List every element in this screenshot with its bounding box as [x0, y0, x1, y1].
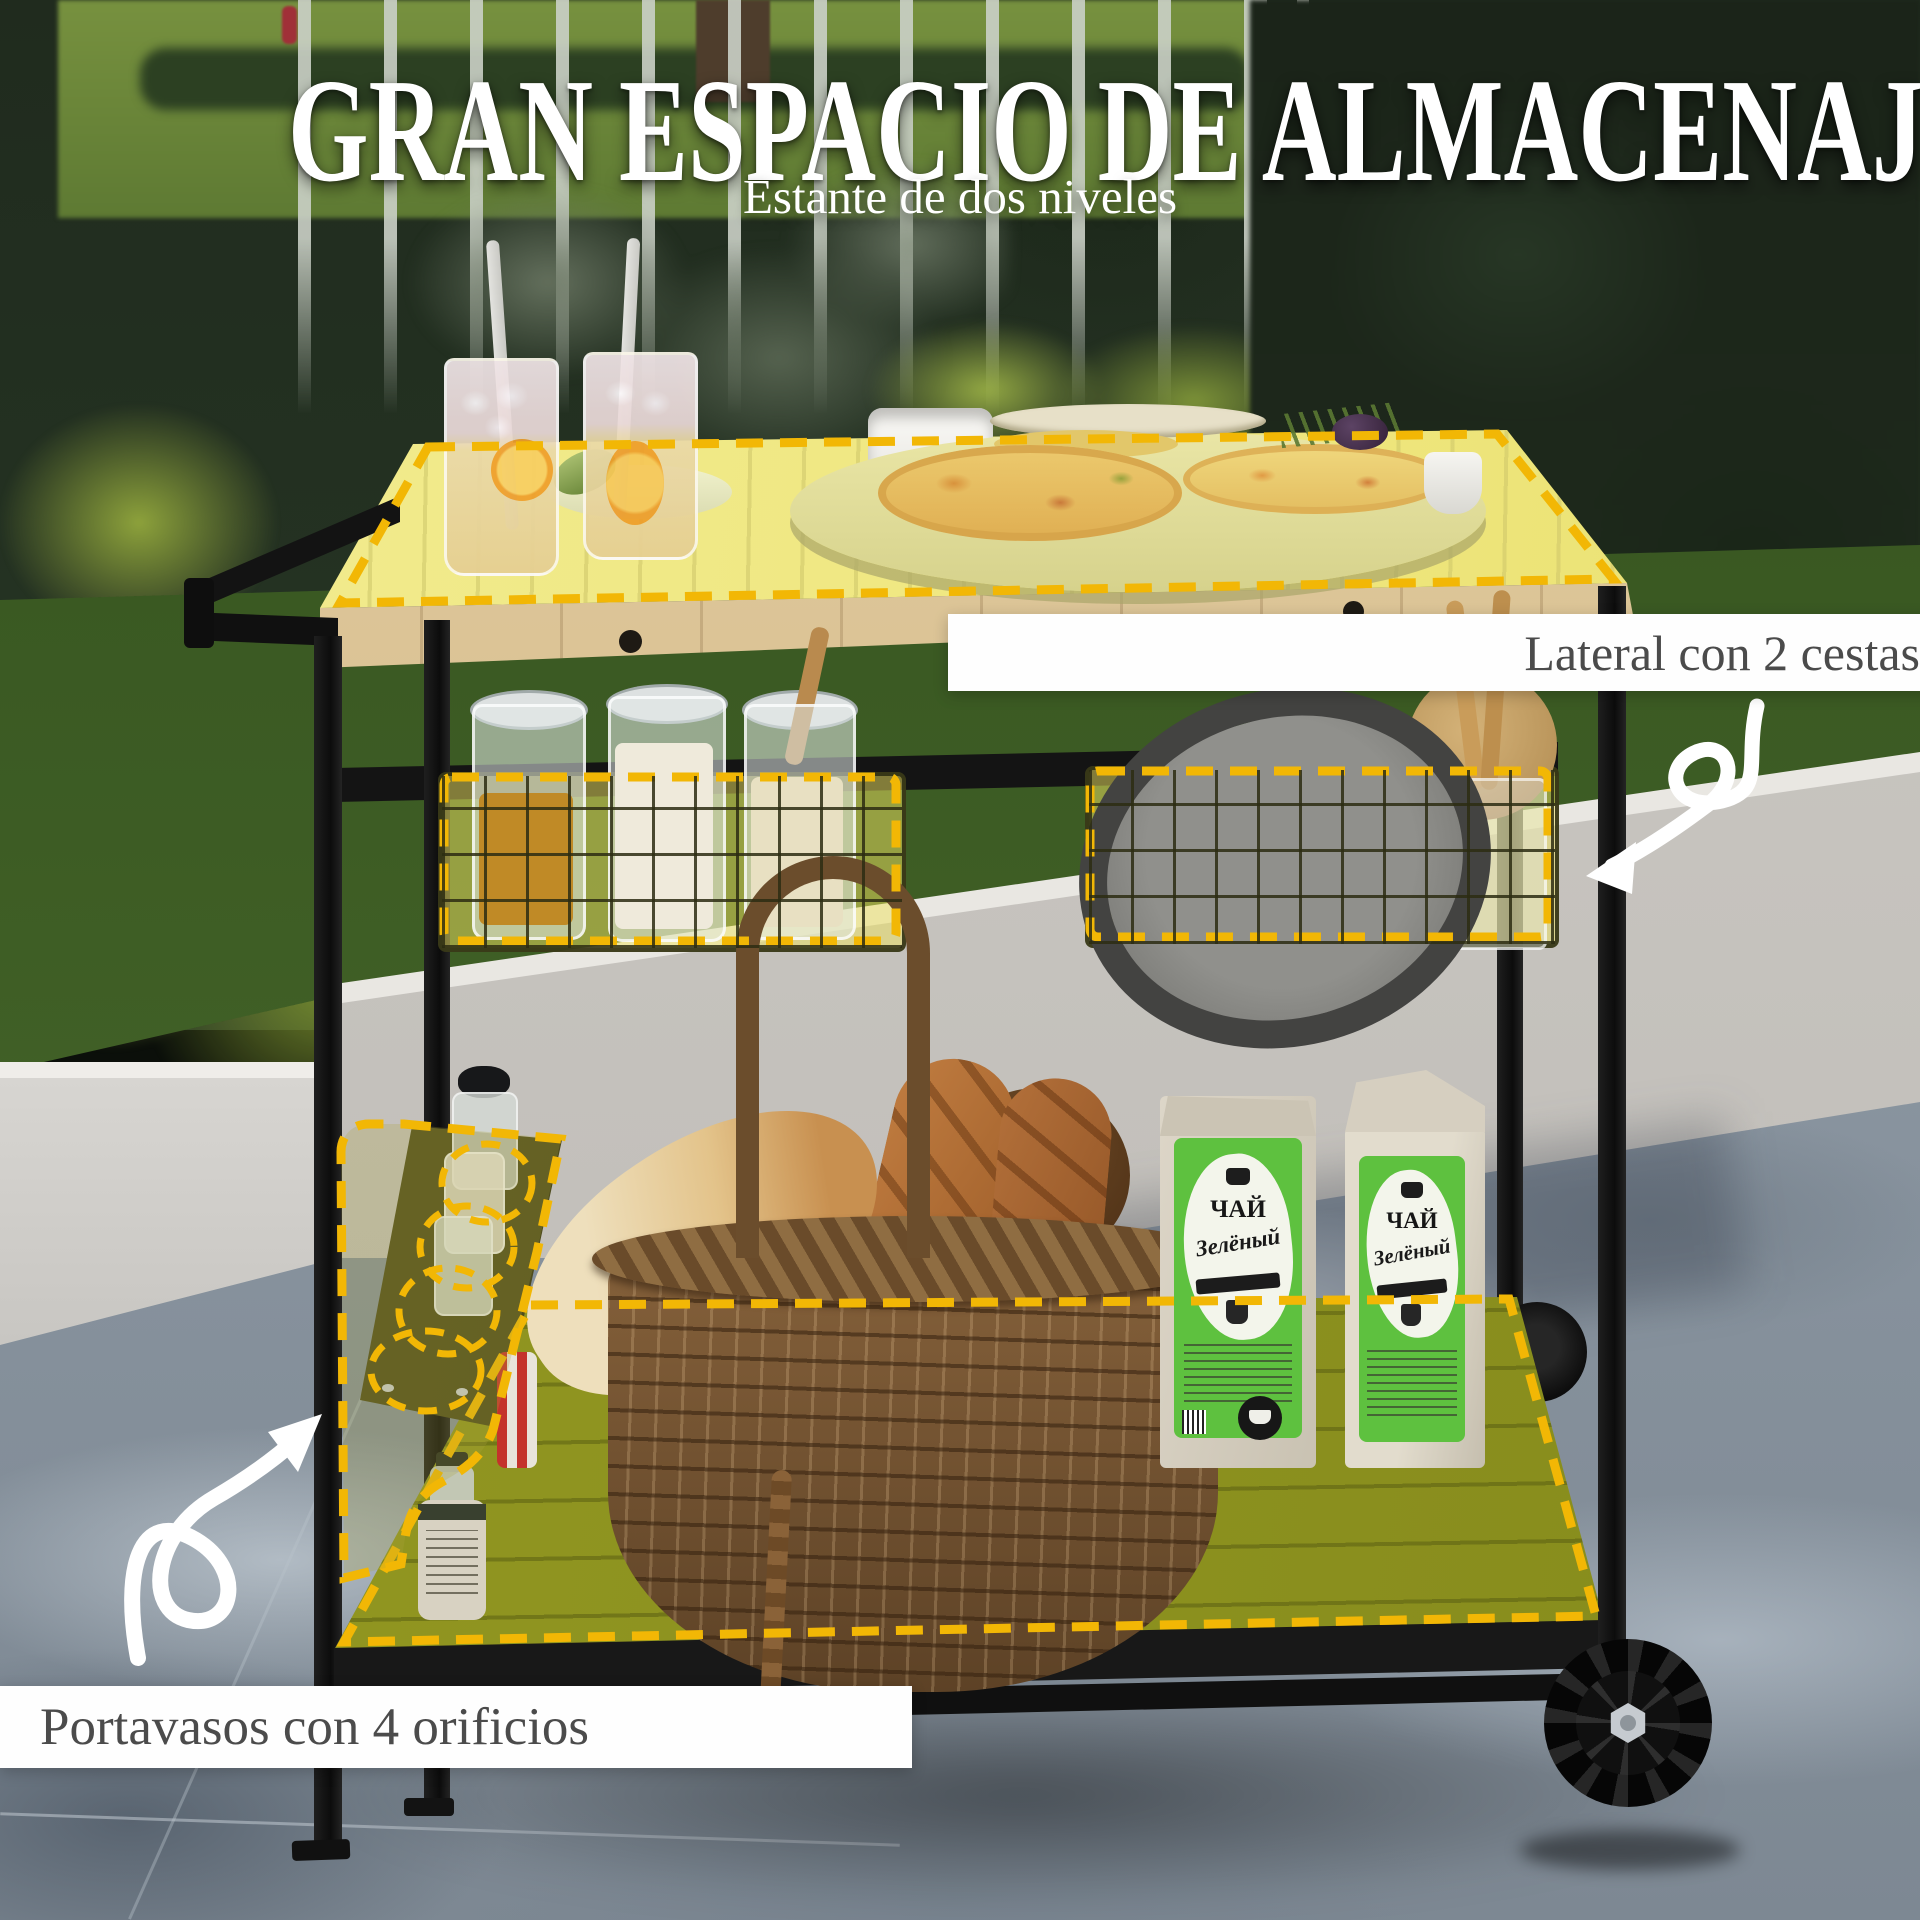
tea-label: ЧАЙ Зелёный — [1174, 1138, 1302, 1438]
ice-cubes — [594, 367, 682, 433]
side-basket-1 — [438, 772, 906, 952]
milk-bottle — [434, 1216, 493, 1316]
tea-label-line1: ЧАЙ — [1174, 1196, 1302, 1224]
distant-person — [282, 6, 297, 44]
tea-bag-gable: ЧАЙ Зелёный — [1345, 1128, 1485, 1468]
labeled-bottle — [418, 1500, 486, 1620]
basket-wire-grid — [1089, 770, 1555, 944]
cart-foot — [404, 1798, 454, 1816]
teapot-icon — [1401, 1182, 1423, 1198]
bottle-label-text-lines — [426, 1530, 478, 1594]
cart-foot — [292, 1839, 351, 1861]
tea-badge — [1238, 1396, 1282, 1440]
teapot-icon — [1226, 1168, 1250, 1185]
bottle-label-band — [418, 1504, 486, 1520]
tea-label-line1: ЧАЙ — [1359, 1208, 1465, 1234]
lemonade-glass — [583, 352, 698, 560]
plank-screw — [382, 1384, 394, 1392]
tea-bag-top-fold — [1160, 1096, 1316, 1136]
callout-cup-holder: Portavasos con 4 orificios — [0, 1686, 912, 1768]
flatbread-pizza — [1183, 444, 1447, 514]
teacup-icon — [1226, 1300, 1248, 1324]
tea-label-text-lines — [1184, 1344, 1292, 1402]
eggplant — [1332, 414, 1388, 450]
cart-leg-front-right — [1598, 586, 1626, 1652]
basket-wire-grid — [442, 776, 902, 948]
lemon-slice — [606, 441, 664, 525]
barcode — [1182, 1410, 1206, 1434]
wheel-hub-center — [1620, 1715, 1636, 1731]
page-subtitle: Estante de dos niveles — [0, 170, 1920, 224]
flatbread-pizza — [878, 445, 1182, 541]
callout-baskets-label: Lateral con 2 cestas — [1524, 628, 1920, 678]
drawer-knob — [619, 630, 642, 653]
lemon-slice — [491, 439, 553, 501]
ice-cubes — [453, 375, 543, 445]
callout-cup-holder-label: Portavasos con 4 orificios — [40, 1701, 589, 1754]
product-infographic: ЧАЙ Зелёный ЧАЙ Зелёный — [0, 0, 1920, 1920]
sauce-bottle — [497, 1352, 537, 1468]
side-handle-grip — [184, 578, 214, 648]
lemonade-glass — [444, 358, 559, 576]
side-basket-2 — [1085, 766, 1559, 948]
front-wheel-shadow — [1520, 1830, 1740, 1870]
callout-baskets: Lateral con 2 cestas — [948, 614, 1920, 691]
wicker-basket-body — [608, 1258, 1218, 1692]
tea-label-text-lines — [1367, 1346, 1457, 1416]
teacup-icon — [1401, 1304, 1421, 1326]
small-white-bowl — [1424, 452, 1482, 514]
planter-wall-left-lip — [0, 1062, 340, 1078]
tea-label: ЧАЙ Зелёный — [1359, 1156, 1465, 1442]
tea-badge-cup — [1249, 1410, 1271, 1424]
tea-bag-flat: ЧАЙ Зелёный — [1160, 1096, 1316, 1468]
plank-screw — [456, 1388, 468, 1396]
